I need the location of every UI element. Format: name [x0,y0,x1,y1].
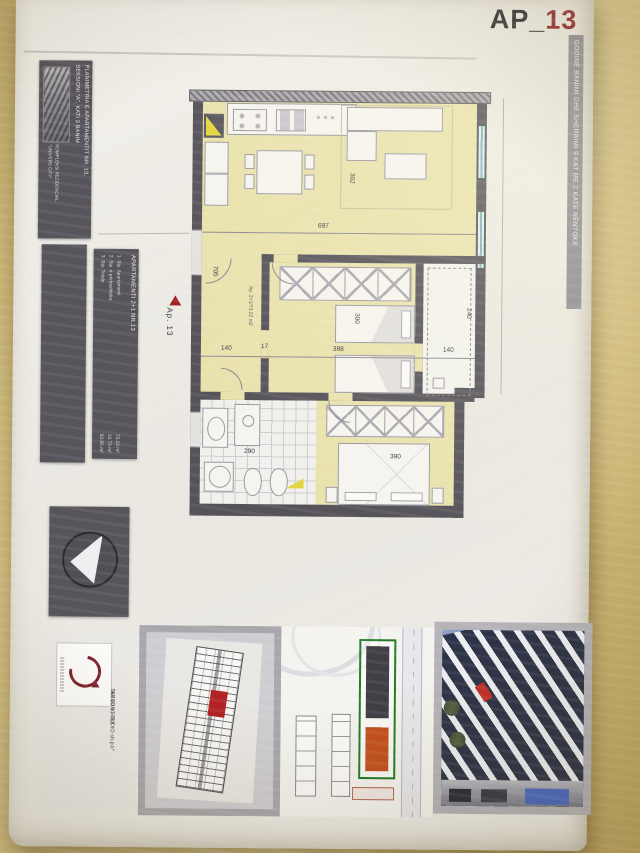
plan-sheet: AP_13 GODINË BANIMI DHE SHERBIMI 9 KAT M… [9,0,594,851]
chair [304,175,314,190]
bathroom-sink [202,408,228,448]
apartment-code: AP_13 [490,4,578,36]
dim-label: 302 [348,173,355,184]
studio-logo [56,642,113,706]
area-table: 1. Sip. Apartamenti 73.22 m² 2. Sip. e p… [96,255,122,453]
interior-wall [414,263,423,401]
apartment-code-number: 13 [545,5,577,35]
kitchen-counter: ✕✕✕ [227,103,357,136]
tree [449,732,465,748]
site-building-dark [366,646,390,718]
dimension-line [501,98,505,394]
dim-label: 290 [244,448,255,455]
exterior-wall-bottom [189,504,463,518]
site-building-orange [365,727,388,771]
stove-icon [233,109,267,131]
site-annotation-box [352,787,394,800]
washing-machine [204,462,234,492]
cooktop-marks: ✕✕✕ [316,115,337,122]
photo-background: AP_13 GODINË BANIMI DHE SHERBIMI 9 KAT M… [0,0,640,853]
marker-triangle-icon [169,295,181,305]
building-thumbnail [43,66,71,142]
arkon-logo-icon [63,649,107,693]
wc-fixture [433,378,445,389]
highlighted-apartment [207,690,228,718]
chair [244,174,254,189]
dimension-extension-line [98,233,190,235]
building-render-photo [441,630,585,807]
sheet-title-line1: PLANIMETRIA E APARTAMENTIT NR. 13, [80,65,90,235]
header-divider [23,50,475,59]
site-building-block [331,714,351,797]
vehicle [481,789,507,802]
window [190,412,200,448]
logo-microtext [60,657,64,691]
apartment-info-title: APARTAMENTI 2+1 NR.13 [128,255,136,453]
site-road [401,627,423,817]
wardrobe [279,266,411,301]
exterior-wall-right-lower [453,388,464,518]
chair [244,154,254,169]
apartment-code-prefix: AP_ [490,4,546,34]
title-panel: PLANIMETRIA E APARTAMENTIT NR. 13, SEKSI… [38,60,93,238]
interior-wall [260,254,269,400]
north-arrow-icon [62,531,118,587]
studio-contact: "ARKON STUDIO sh.p.k" 067 20 90 483 [115,689,116,813]
exterior-wall-right [475,104,488,394]
window [192,230,202,276]
complex-name: KOMPLEKSI REZIDENCIAL "UNIVERS CITY" [46,144,61,236]
studio-phone: 067 20 90 483 [107,689,116,724]
building-banner: GODINË BANIMI DHE SHERBIMI 9 KAT ME 2 KA… [566,35,583,309]
studio-logo-panel: "ARKON STUDIO sh.p.k" 067 20 90 483 [43,630,137,809]
vehicle-blue [525,788,569,804]
marker-label: Ap. 13 [165,307,174,336]
street [441,780,583,807]
single-bed [335,305,415,344]
nightstand [326,487,338,503]
sidebar-bar [40,244,87,462]
sofa-chaise [347,131,377,161]
apartment-info-panel: APARTAMENTI 2+1 NR.13 1. Sip. Apartament… [92,249,139,459]
typical-floor-drawing [175,646,243,794]
dim-label: 140 [221,345,232,352]
sheet-title: PLANIMETRIA E APARTAMENTIT NR. 13, SEKSI… [71,64,90,234]
dim-label: 240 [465,308,472,319]
apartment-marker: Ap. 13 [165,295,185,336]
dim-label: 388 [333,346,344,353]
north-panel [49,506,130,617]
coffee-table [384,153,426,179]
chair [304,155,314,170]
dim-label: 390 [390,453,401,460]
shaft-marker [204,114,224,138]
kitchen-tall-unit [204,142,229,206]
vehicle [449,789,471,802]
dim-label: 300 [353,313,360,324]
double-bed [338,443,431,506]
dining-table [256,150,302,194]
footer-strip: "ARKON STUDIO sh.p.k" 067 20 90 483 [35,624,585,821]
corridor-label: Ap. 2+1/73.22 m2 [247,286,253,326]
sink-icon [276,109,306,131]
floor-plan: ✕✕✕ [185,90,491,531]
nightstand [432,488,444,504]
balcony-glazing [478,126,484,178]
dim-label: 697 [318,223,329,230]
site-highlight-outline [358,639,396,779]
building-floorplan-panel [138,625,282,816]
sofa [347,107,443,132]
shower [234,404,260,446]
render-photo-panel [433,622,593,815]
site-plan-panel [280,626,435,817]
dim-label: 140 [443,347,454,354]
site-building-block [295,715,317,796]
single-bed [335,355,415,394]
dim-label: 17 [261,343,268,350]
dim-label: 705 [212,266,219,277]
